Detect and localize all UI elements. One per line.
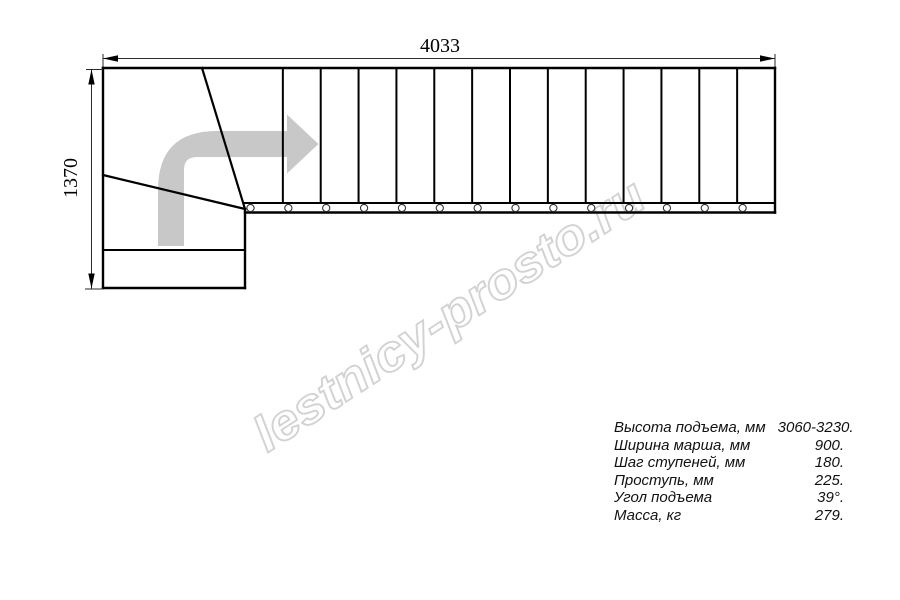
stair-outline bbox=[103, 68, 775, 288]
dimension-height: 1370 bbox=[60, 70, 103, 290]
bolt-circle-icon bbox=[588, 204, 595, 211]
spec-value: 180. bbox=[803, 454, 844, 472]
spec-value: 279. bbox=[803, 507, 844, 525]
bolt-circle-icon bbox=[701, 204, 708, 211]
spec-label: Шаг ступеней, мм bbox=[614, 454, 745, 472]
spec-label: Масса, кг bbox=[614, 507, 681, 525]
bolt-circle-icon bbox=[436, 204, 443, 211]
spec-label: Высота подъема, мм bbox=[614, 419, 766, 437]
spec-row: Шаг ступеней, мм 180. bbox=[614, 454, 844, 472]
dimension-width: 4033 bbox=[103, 35, 775, 67]
stair-drawing-canvas: lestnicy-prosto.ru 4033 bbox=[0, 0, 900, 600]
bolt-circle-icon bbox=[625, 204, 632, 211]
spec-label: Проступь, мм bbox=[614, 472, 714, 490]
spec-value: 3060-3230. bbox=[766, 419, 854, 437]
bolt-circle-icon bbox=[663, 204, 670, 211]
spec-row: Ширина марша, мм 900. bbox=[614, 437, 844, 455]
spec-row: Масса, кг 279. bbox=[614, 507, 844, 525]
bolt-circle-icon bbox=[247, 204, 254, 211]
height-dimension-label: 1370 bbox=[60, 158, 82, 198]
bolt-circle-icon bbox=[739, 204, 746, 211]
spec-row: Высота подъема, мм 3060-3230. bbox=[614, 419, 844, 437]
bolt-circles bbox=[247, 204, 746, 211]
spec-value: 225. bbox=[803, 472, 844, 490]
spec-label: Ширина марша, мм bbox=[614, 437, 750, 455]
dim-arrow-up-icon bbox=[88, 70, 94, 85]
spec-value: 39°. bbox=[805, 489, 844, 507]
spec-row: Угол подъема 39°. bbox=[614, 489, 844, 507]
dim-arrow-down-icon bbox=[88, 274, 94, 289]
spec-table: Высота подъема, мм 3060-3230. Ширина мар… bbox=[614, 419, 844, 525]
bolt-circle-icon bbox=[398, 204, 405, 211]
spec-label: Угол подъема bbox=[614, 489, 712, 507]
dim-arrow-right-icon bbox=[760, 55, 775, 61]
spec-value: 900. bbox=[803, 437, 844, 455]
width-dimension-label: 4033 bbox=[420, 35, 460, 57]
bolt-circle-icon bbox=[474, 204, 481, 211]
bolt-circle-icon bbox=[360, 204, 367, 211]
bolt-circle-icon bbox=[323, 204, 330, 211]
spec-row: Проступь, мм 225. bbox=[614, 472, 844, 490]
bolt-circle-icon bbox=[550, 204, 557, 211]
bolt-circle-icon bbox=[285, 204, 292, 211]
direction-arrow bbox=[158, 115, 319, 247]
bolt-circle-icon bbox=[512, 204, 519, 211]
dim-arrow-left-icon bbox=[103, 55, 118, 61]
tread-lines bbox=[283, 69, 737, 203]
